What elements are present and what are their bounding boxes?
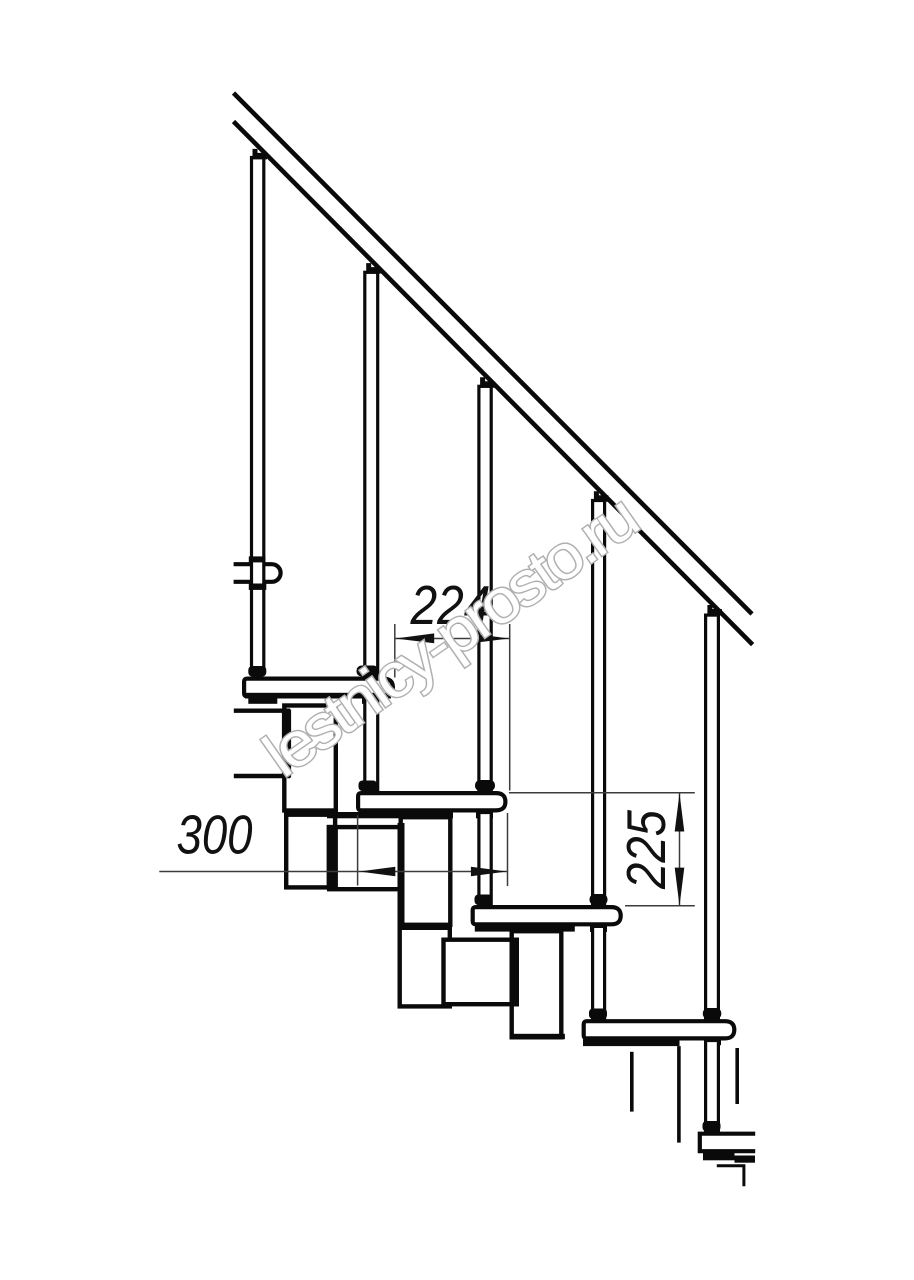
svg-text:225: 225 [615, 810, 677, 890]
svg-text:300: 300 [177, 804, 253, 866]
